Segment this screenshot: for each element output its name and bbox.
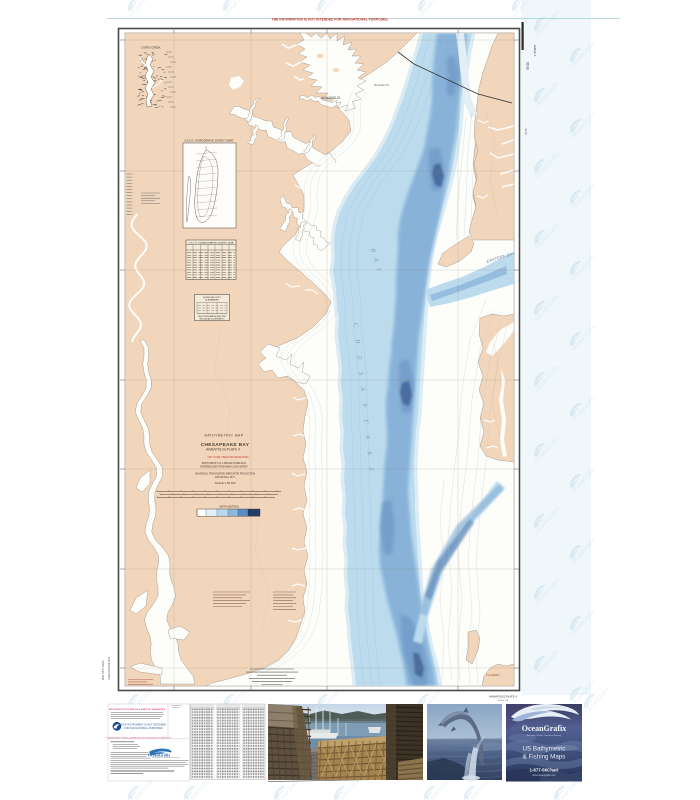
svg-text:ANNAPOLIS: ANNAPOLIS [321, 96, 341, 100]
svg-text:TILGHMAN: TILGHMAN [486, 673, 500, 677]
svg-text:US Bathymetric: US Bathymetric [523, 746, 566, 753]
svg-text:NOT TO BE USED FOR NAVIGATION: NOT TO BE USED FOR NAVIGATION [208, 456, 249, 459]
svg-text:OceanGrafix: OceanGrafix [522, 724, 566, 733]
svg-text:CHESAPEAKE BAY: CHESAPEAKE BAY [107, 656, 111, 680]
svg-text:FOR NAVIGATIONAL PURPOSES: FOR NAVIGATIONAL PURPOSES [124, 727, 163, 730]
svg-text:U.S.C.G. HYDROGRAPHIC SURVEY C: U.S.C.G. HYDROGRAPHIC SURVEY CHART [184, 140, 234, 143]
svg-text:SECOND AT 15 DEGREES C: SECOND AT 15 DEGREES C [199, 317, 225, 320]
svg-text:U.S.C.G. OCEANOGRAPHIC SURVEY: U.S.C.G. OCEANOGRAPHIC SURVEY DATA [189, 241, 234, 244]
svg-text:Plate 4 of 8: Plate 4 of 8 [498, 699, 509, 702]
svg-text:CURTIS CREEK: CURTIS CREEK [141, 46, 161, 50]
svg-text:BATHYMETRIC MAP: BATHYMETRIC MAP [205, 434, 244, 438]
svg-text:1-877-56Chart: 1-877-56Chart [529, 768, 559, 773]
svg-text:Mountain Pt: Mountain Pt [374, 83, 389, 87]
svg-text:www.oceangrafix.com: www.oceangrafix.com [532, 774, 555, 777]
svg-text:SCALE 1:50,000: SCALE 1:50,000 [215, 481, 236, 485]
svg-text:Accurate Charts, Confident Boa: Accurate Charts, Confident Boating [527, 734, 562, 737]
svg-text:IN SEAWATER: IN SEAWATER [205, 299, 219, 302]
svg-text:39 00: 39 00 [526, 62, 530, 70]
svg-text:76 20: 76 20 [524, 128, 528, 135]
svg-text:IMPORTANT NOTICE AND DISCLAIME: IMPORTANT NOTICE AND DISCLAIMER OF WARRA… [109, 708, 166, 711]
svg-text:ANNAPOLIS PLATE 4: ANNAPOLIS PLATE 4 [489, 695, 517, 699]
svg-text:OceanGrafix: OceanGrafix [148, 753, 170, 758]
svg-text:REFERENCED FROM MEAN LOW WATER: REFERENCED FROM MEAN LOW WATER [201, 465, 248, 468]
svg-text:PLEASE READ THE ACCOMPANYING D: PLEASE READ THE ACCOMPANYING DOCUMENTATI… [106, 736, 172, 739]
svg-text:DEPTH (METERS): DEPTH (METERS) [219, 507, 239, 509]
svg-text:THE INFORMATION IS NOT INTENDE: THE INFORMATION IS NOT INTENDED FOR NAVI… [272, 17, 389, 21]
svg-text:Edition 1: Edition 1 [533, 45, 537, 57]
svg-text:DATUM MLA 1977: DATUM MLA 1977 [215, 476, 235, 479]
svg-text:& Fishing Maps: & Fishing Maps [523, 754, 566, 761]
svg-text:ANNAPOLIS-PLATE 4: ANNAPOLIS-PLATE 4 [206, 448, 240, 452]
svg-text:B94 05.5 1994: B94 05.5 1994 [101, 660, 105, 680]
